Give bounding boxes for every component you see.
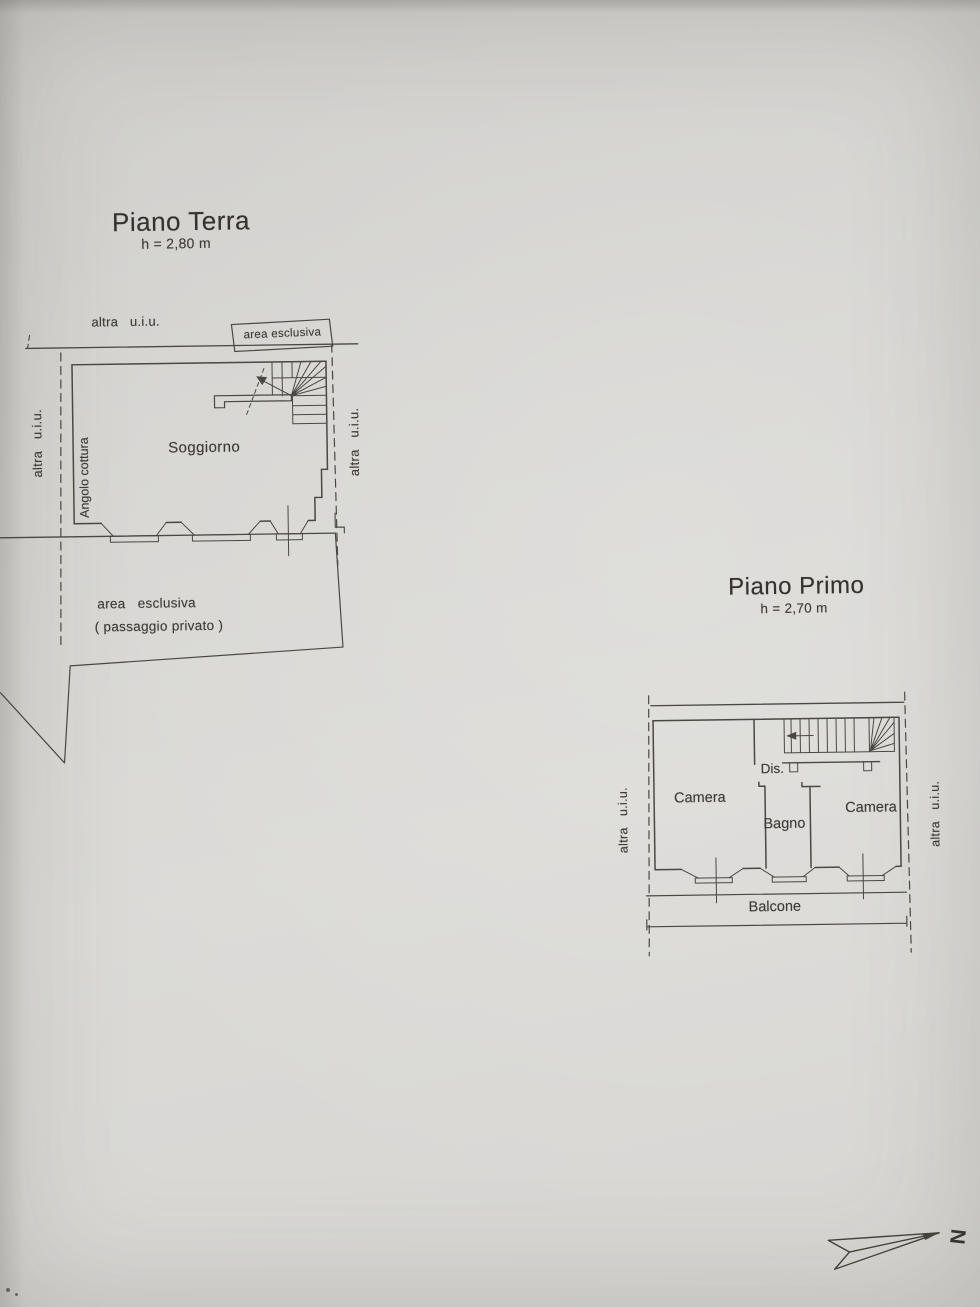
gf-boundary-label-top: altra u.i.u. [91, 315, 160, 330]
dust-speck [6, 1288, 10, 1292]
north-arrow-outline [828, 1233, 939, 1270]
gf-exclusive-area-label: area esclusiva [97, 596, 196, 612]
ff-balcony-outer-line [647, 916, 907, 930]
gf-living-room-label: Soggiorno [168, 439, 240, 457]
ff-camera-partition [754, 719, 755, 764]
gf-stair-walk-line [246, 368, 265, 414]
ff-bathroom-label: Bagno [763, 817, 805, 834]
gf-boundary-top-tick [28, 335, 30, 347]
ground-floor-plan-drawing [0, 296, 402, 782]
gf-ground-line [0, 533, 335, 538]
dust-speck [15, 1293, 18, 1296]
north-arrow [806, 1215, 980, 1288]
gf-section-tick [288, 506, 289, 556]
ff-boundary-label-left: altra u.i.u. [617, 787, 630, 853]
ff-windows [681, 853, 897, 903]
ff-height-note: h = 2,70 m [760, 601, 827, 617]
gf-kitchen-corner-label: Angolo cottura [78, 437, 92, 518]
gf-passaggio-outline [0, 533, 345, 764]
gf-boundary-label-right: altra u.i.u. [347, 408, 361, 477]
ff-boundary-label-right: altra u.i.u. [929, 781, 942, 847]
gf-stair [214, 361, 327, 425]
north-letter: N [944, 1228, 969, 1246]
gf-exclusive-area-sublabel: ( passaggio privato ) [95, 619, 224, 636]
ff-partitions [754, 718, 821, 868]
ff-hallway-label: Dis. [761, 762, 784, 777]
north-arrow-tip [922, 1233, 939, 1240]
ff-dashed-right [905, 692, 912, 952]
gf-boundary-label-left: altra u.i.u. [30, 409, 44, 478]
ff-section-tick-left [716, 858, 717, 903]
ff-dashed-left [646, 696, 653, 956]
ff-boundary-top-line [651, 702, 904, 706]
gf-windows [101, 506, 309, 559]
gf-dashed-left [57, 353, 65, 646]
ff-section-tick-right [863, 854, 864, 899]
gf-dashed-right [332, 344, 338, 565]
ff-stair [782, 717, 895, 772]
ff-balcony-label: Balcone [749, 900, 802, 917]
ff-balcony-slab-line [646, 892, 906, 896]
ff-bedroom-right-label: Camera [845, 800, 897, 817]
scanned-floor-plan-page: N Piano Terra h = 2,80 m altra u.i.u. ar… [0, 0, 980, 1307]
gf-title: Piano Terra [112, 206, 250, 237]
paper-sheet: N Piano Terra h = 2,80 m altra u.i.u. ar… [0, 0, 980, 1307]
ff-title: Piano Primo [728, 573, 865, 601]
ff-bedroom-left-label: Camera [674, 791, 726, 808]
gf-height-note: h = 2,80 m [141, 236, 211, 252]
